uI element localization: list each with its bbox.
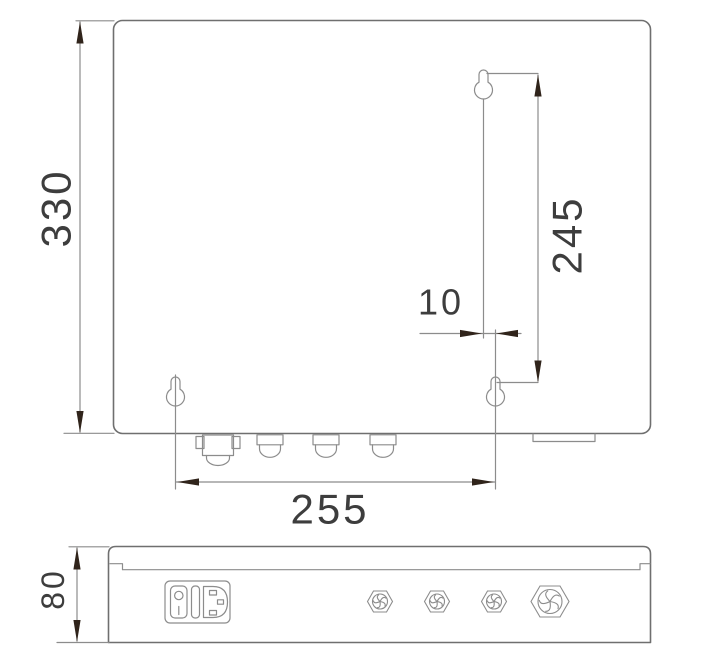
cable-gland-large-side — [196, 435, 240, 466]
dimension-label-245: 245 — [544, 195, 591, 274]
dimension-label-255: 255 — [290, 486, 369, 533]
cable-gland-side — [257, 435, 283, 458]
arrowhead-left — [177, 478, 199, 485]
dimension-overall-height: 330 — [33, 21, 115, 434]
dimension-enclosure-depth: 80 — [35, 547, 109, 643]
drawing-canvas: 330 245 10 255 — [0, 0, 727, 662]
arrowhead-right — [472, 478, 494, 485]
arrowhead-down — [73, 620, 80, 642]
dimension-label-80: 80 — [35, 568, 71, 610]
arrowhead-down — [76, 411, 83, 433]
bottom-tab — [533, 434, 595, 442]
dimension-label-10: 10 — [418, 282, 464, 323]
arrowhead-up — [76, 22, 83, 44]
dimension-label-330: 330 — [33, 168, 80, 247]
cable-gland-side — [370, 435, 396, 458]
bottom-view — [109, 547, 651, 643]
arrowhead-up — [73, 548, 80, 570]
dimension-keyhole-horizontal-spacing: 255 — [176, 478, 496, 532]
cable-gland-side — [313, 435, 339, 458]
technical-drawing: 330 245 10 255 — [0, 0, 727, 662]
